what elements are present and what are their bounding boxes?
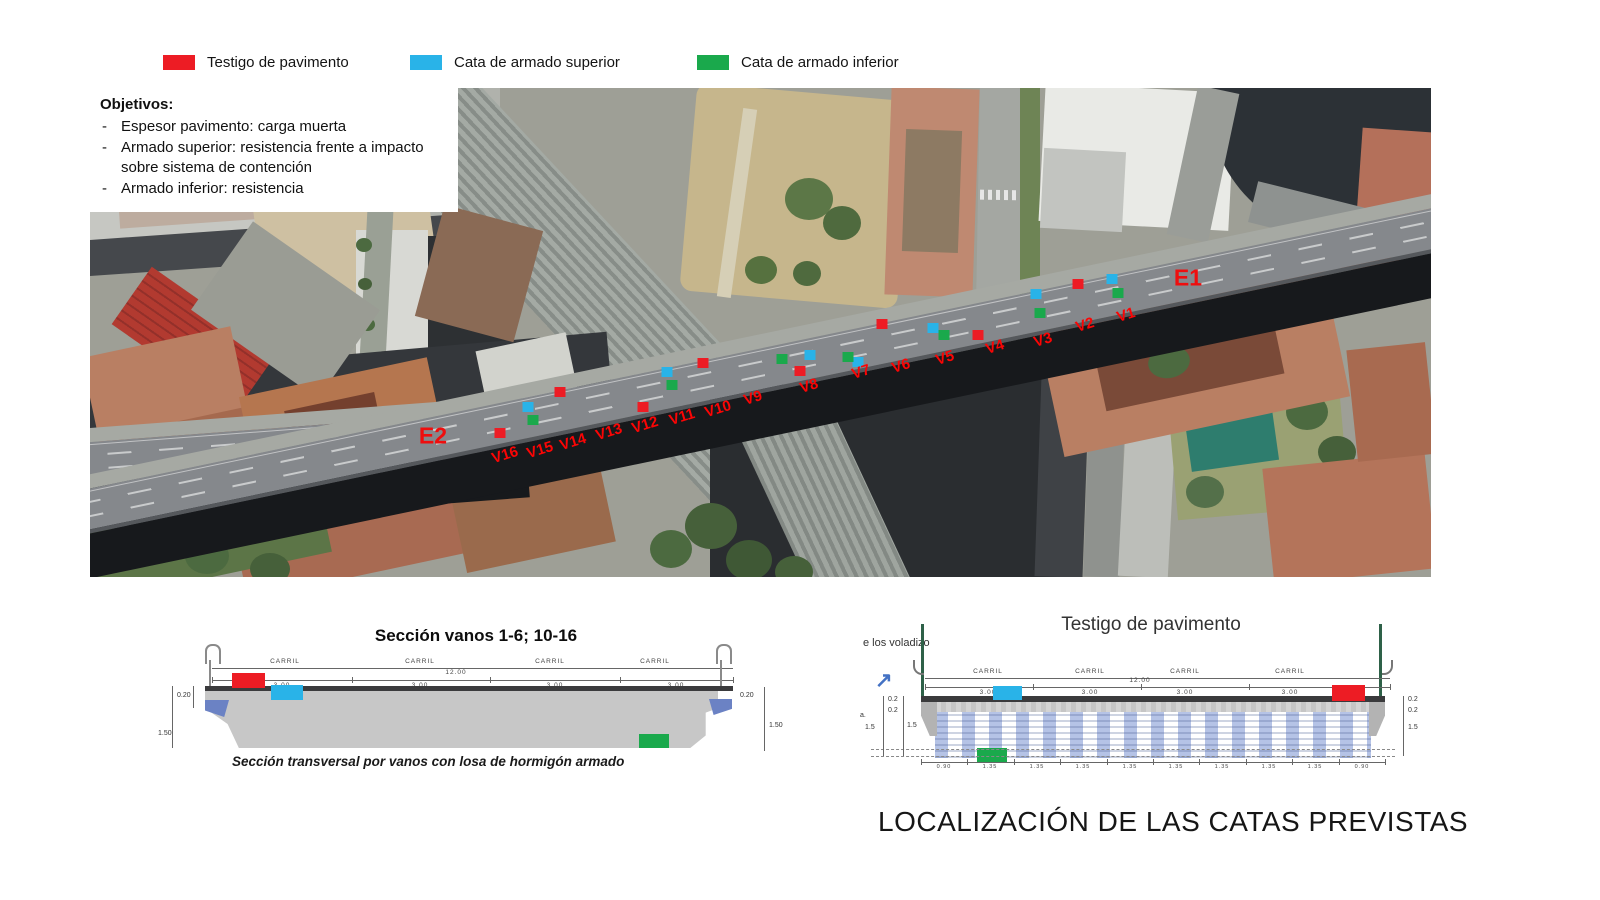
cata-armado-superior-sample (271, 685, 303, 700)
dashed-baseline (871, 756, 1395, 757)
bottom-dim-label: 1.35 (1123, 764, 1138, 770)
carril-label: CARRIL (405, 658, 435, 665)
dim-label: 1.50 (158, 730, 172, 737)
station-label-e1: E1 (1174, 265, 1202, 292)
cata-marker-pavimento (555, 387, 566, 397)
dim-tick (490, 677, 491, 683)
map-feature (685, 503, 737, 549)
map-feature (650, 530, 692, 568)
cata-marker-pavimento (795, 366, 806, 376)
bottom-dim-label: 0.90 (1355, 764, 1370, 770)
dim-label: 0.20 (177, 692, 191, 699)
dim-line (1403, 696, 1404, 756)
dim-line (193, 686, 194, 708)
legend-label: Cata de armado inferior (741, 54, 899, 71)
dim-label: 0.2 (1408, 696, 1418, 703)
legend-item-armado-superior: Cata de armado superior (410, 54, 620, 71)
objective-text: Espesor pavimento: carga muerta (121, 117, 346, 137)
cata-marker-armado-inferior (1113, 288, 1124, 298)
map-feature (745, 256, 777, 284)
north-east-arrow-icon: ↗ (875, 668, 893, 693)
bottom-dim-label: 1.35 (1169, 764, 1184, 770)
map-feature (1262, 452, 1431, 577)
bullet-dash: - (100, 138, 111, 178)
dim-line (883, 696, 884, 756)
dim-tick (1199, 759, 1200, 765)
map-feature (726, 540, 772, 577)
dim-tick (1339, 759, 1340, 765)
dim-tick (1060, 759, 1061, 765)
left-railing (205, 644, 221, 664)
carril-label: CARRIL (973, 668, 1003, 675)
dim-tick (925, 684, 926, 690)
dim-label: 0.2 (1408, 707, 1418, 714)
bottom-dim-label: 1.35 (1076, 764, 1091, 770)
objectives-title: Objetivos: (100, 96, 446, 113)
cata-marker-armado-superior (523, 402, 534, 412)
dim-label: 1.5 (865, 724, 875, 731)
cata-armado-inferior-sample (639, 734, 669, 748)
cata-marker-armado-inferior (1035, 308, 1046, 318)
dashed-baseline (871, 749, 1395, 750)
carril-label: CARRIL (1275, 668, 1305, 675)
pavimento-swatch (163, 55, 195, 70)
cata-marker-armado-superior (662, 367, 673, 377)
right-railing-post (720, 660, 722, 687)
map-feature (356, 238, 372, 252)
bottom-dim-label: 1.35 (1215, 764, 1230, 770)
cata-marker-armado-inferior (777, 354, 788, 364)
bottom-dim-label: 1.35 (1308, 764, 1323, 770)
cata-marker-armado-superior (928, 323, 939, 333)
left-railing-curve (913, 660, 924, 675)
slide-page: Testigo de pavimentoCata de armado super… (0, 0, 1600, 900)
carril-label: CARRIL (1170, 668, 1200, 675)
dim-tick (967, 759, 968, 765)
cata-marker-pavimento (877, 319, 888, 329)
objectives-box: Objetivos: -Espesor pavimento: carga mue… (88, 88, 458, 212)
voladizo-note: e los voladizo (863, 637, 930, 649)
dim-label: 1.50 (769, 722, 783, 729)
dim-label: 1.5 (1408, 724, 1418, 731)
armado-inferior-swatch (697, 55, 729, 70)
dim-line (764, 687, 765, 751)
map-feature (1346, 342, 1431, 462)
testigo-title: Testigo de pavimento (855, 614, 1447, 636)
dim-line (903, 696, 904, 756)
dim-row-line (212, 668, 733, 669)
cata-marker-armado-inferior (528, 415, 539, 425)
right-web (1369, 702, 1385, 736)
dim-label: 0.20 (740, 692, 754, 699)
bullet-dash: - (100, 179, 111, 199)
carril-label: CARRIL (270, 658, 300, 665)
objective-text: Armado superior: resistencia frente a im… (121, 138, 446, 178)
map-feature (250, 553, 290, 577)
lane-width-label: 3.00 (1282, 689, 1299, 696)
objective-text: Armado inferior: resistencia (121, 179, 304, 199)
legend: Testigo de pavimentoCata de armado super… (0, 0, 1600, 85)
map-feature (1040, 148, 1126, 232)
bottom-dim-label: 1.35 (1030, 764, 1045, 770)
legend-item-pavimento: Testigo de pavimento (163, 54, 349, 71)
section-vanos-title: Sección vanos 1-6; 10-16 (160, 626, 792, 646)
objective-item: -Espesor pavimento: carga muerta (100, 117, 446, 137)
dim-tick (1153, 759, 1154, 765)
objectives-list: -Espesor pavimento: carga muerta-Armado … (100, 117, 446, 199)
dim-tick (212, 677, 213, 683)
dim-label: 1.5 (907, 722, 917, 729)
cata-armado-superior-sample (993, 686, 1022, 700)
cata-marker-armado-inferior (939, 330, 950, 340)
lane-width-label: 3.00 (1177, 689, 1194, 696)
cata-pavimento-sample (232, 673, 265, 688)
right-bearing (709, 699, 732, 715)
legend-label: Testigo de pavimento (207, 54, 349, 71)
map-feature (358, 278, 372, 290)
cata-marker-pavimento (973, 330, 984, 340)
legend-item-armado-inferior: Cata de armado inferior (697, 54, 899, 71)
map-feature (793, 261, 821, 286)
dim-tick (1292, 759, 1293, 765)
carril-label: CARRIL (640, 658, 670, 665)
left-web (921, 702, 937, 736)
total-width-label: 12.00 (1129, 677, 1150, 684)
right-railing (716, 644, 732, 664)
dim-label: 0.2 (888, 696, 898, 703)
cata-marker-armado-inferior (667, 380, 678, 390)
bottom-dim-label: 1.35 (1262, 764, 1277, 770)
right-railing-curve (1382, 660, 1393, 675)
dim-tick (733, 677, 734, 683)
bottom-dim-label: 1.35 (983, 764, 998, 770)
dim-tick (352, 677, 353, 683)
cata-marker-armado-inferior (843, 352, 854, 362)
dim-tick (1246, 759, 1247, 765)
dim-tick (1033, 684, 1034, 690)
dim-tick (620, 677, 621, 683)
cata-pavimento-sample (1332, 685, 1365, 701)
dim-line (172, 686, 173, 748)
station-label-e2: E2 (419, 423, 447, 450)
section-vanos-caption: Sección transversal por vanos con losa d… (232, 754, 624, 769)
dim-label: 0.2 (888, 707, 898, 714)
bottom-dim-label: 0.90 (937, 764, 952, 770)
cata-marker-pavimento (638, 402, 649, 412)
map-feature (1186, 476, 1224, 508)
dim-tick (1107, 759, 1108, 765)
left-railing-post (209, 660, 211, 687)
objective-item: -Armado inferior: resistencia (100, 179, 446, 199)
dim-tick (1249, 684, 1250, 690)
map-feature (823, 206, 861, 240)
dim-tick (1141, 684, 1142, 690)
cata-marker-armado-superior (805, 350, 816, 360)
cata-marker-armado-superior (1031, 289, 1042, 299)
objective-item: -Armado superior: resistencia frente a i… (100, 138, 446, 178)
dim-row-line (925, 678, 1390, 679)
legend-label: Cata de armado superior (454, 54, 620, 71)
bullet-dash: - (100, 117, 111, 137)
dim-tick (1385, 759, 1386, 765)
total-width-label: 12.00 (445, 669, 466, 676)
section-vanos-diagram: Sección vanos 1-6; 10-16 CARRILCARRILCAR… (160, 612, 792, 797)
dim-label: a. (860, 712, 866, 719)
armado-superior-swatch (410, 55, 442, 70)
dim-tick (921, 759, 922, 765)
carril-label: CARRIL (1075, 668, 1105, 675)
dim-tick (1014, 759, 1015, 765)
cata-marker-pavimento (1073, 279, 1084, 289)
map-feature (902, 129, 962, 253)
map-feature (980, 190, 1020, 201)
page-title: LOCALIZACIÓN DE LAS CATAS PREVISTAS (878, 806, 1468, 838)
dim-row-line (212, 680, 733, 681)
testigo-pavimento-diagram: Testigo de pavimento e los voladizo ↗ CA… (855, 608, 1447, 798)
dim-tick (1390, 684, 1391, 690)
cata-marker-armado-superior (1107, 274, 1118, 284)
map-feature (1020, 88, 1040, 304)
lane-width-label: 3.00 (1082, 689, 1099, 696)
carril-label: CARRIL (535, 658, 565, 665)
cata-marker-pavimento (495, 428, 506, 438)
deck-top-flange (921, 702, 1385, 712)
cata-marker-pavimento (698, 358, 709, 368)
